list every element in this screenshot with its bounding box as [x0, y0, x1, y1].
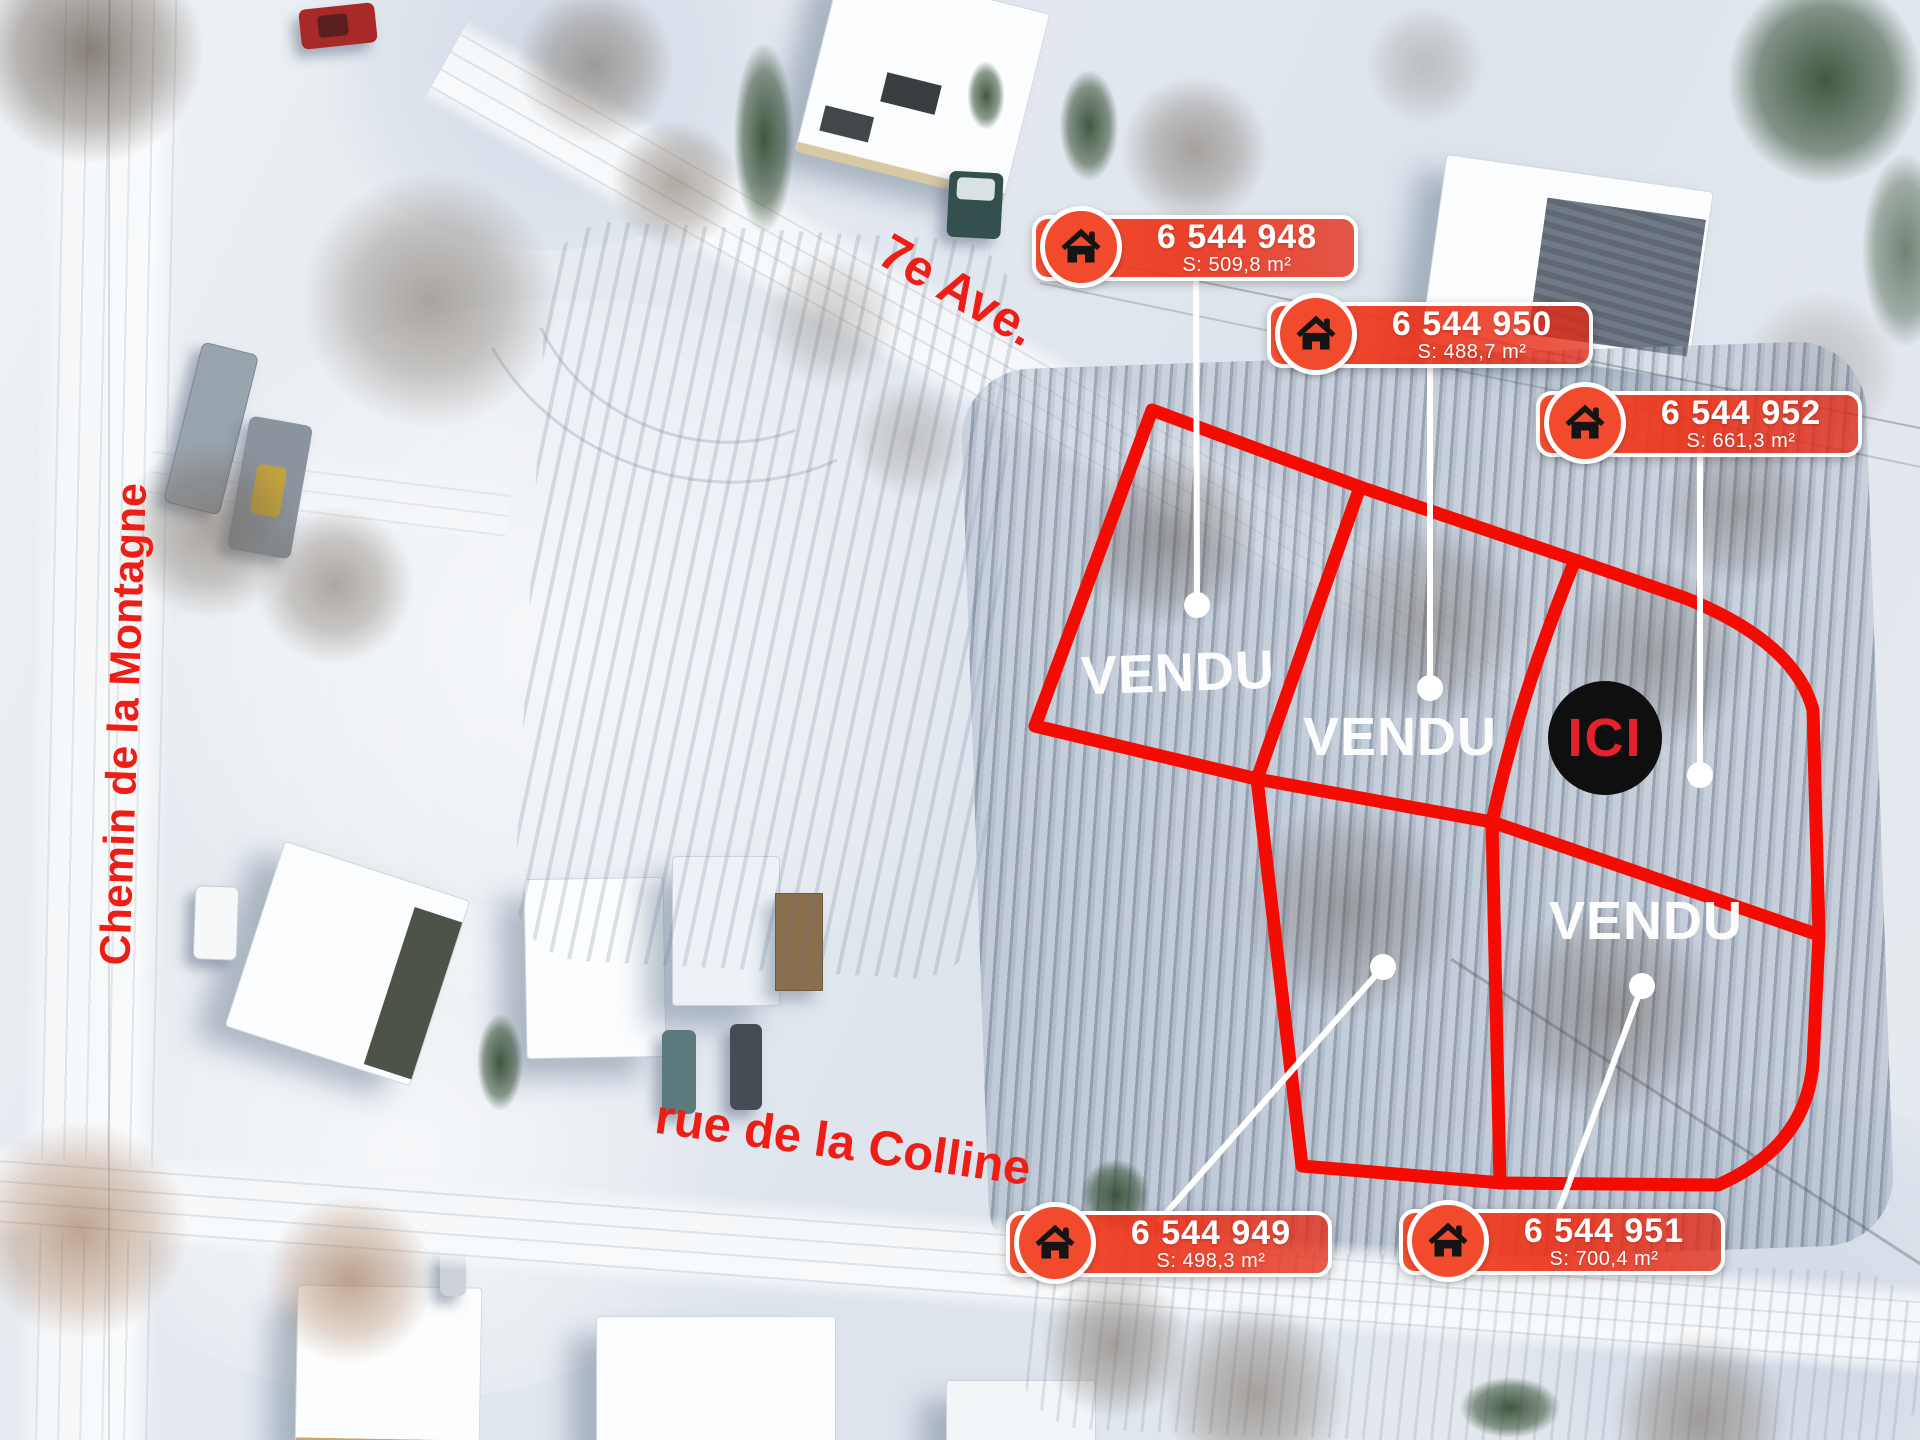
house-icon-circle [1544, 382, 1626, 464]
badge-text: 6 544 951 S: 700,4 m² [1491, 1213, 1717, 1271]
lot-dot[interactable] [1184, 592, 1210, 618]
badge-text: 6 544 949 S: 498,3 m² [1098, 1215, 1324, 1273]
house-icon-circle [1275, 293, 1357, 375]
lot-badge-6544952[interactable]: 6 544 952 S: 661,3 m² [1536, 391, 1862, 457]
badge-text: 6 544 950 S: 488,7 m² [1359, 306, 1585, 364]
lot-surface: S: 488,7 m² [1418, 341, 1527, 363]
sold-label: VENDU [1526, 891, 1766, 951]
lot-number: 6 544 952 [1661, 396, 1821, 430]
house-icon-circle [1014, 1202, 1096, 1284]
lot-badge-6544950[interactable]: 6 544 950 S: 488,7 m² [1267, 302, 1593, 368]
sold-label: VENDU [1057, 639, 1299, 707]
lot-badge-6544951[interactable]: 6 544 951 S: 700,4 m² [1399, 1209, 1725, 1275]
lot-surface: S: 700,4 m² [1550, 1248, 1659, 1270]
house-icon [1562, 400, 1608, 446]
lot-number: 6 544 948 [1157, 220, 1317, 254]
aerial-map: 7e Ave. Chemin de la Montagne rue de la … [0, 0, 1920, 1440]
lot-number: 6 544 951 [1524, 1214, 1684, 1248]
lot-number: 6 544 950 [1392, 307, 1552, 341]
here-marker[interactable]: ICI [1548, 681, 1662, 795]
house-icon-circle [1040, 206, 1122, 288]
lot-badge-6544948[interactable]: 6 544 948 S: 509,8 m² [1032, 215, 1358, 281]
lot-dot[interactable] [1629, 973, 1655, 999]
house-icon [1058, 224, 1104, 270]
house-icon [1425, 1218, 1471, 1264]
house-icon [1293, 311, 1339, 357]
lot-dot[interactable] [1370, 954, 1396, 980]
lot-badge-6544949[interactable]: 6 544 949 S: 498,3 m² [1006, 1211, 1332, 1277]
sold-label: VENDU [1280, 707, 1520, 767]
lot-surface: S: 509,8 m² [1183, 254, 1292, 276]
house-icon [1032, 1220, 1078, 1266]
lot-surface: S: 498,3 m² [1157, 1250, 1266, 1272]
lot-surface: S: 661,3 m² [1687, 430, 1796, 452]
badge-text: 6 544 952 S: 661,3 m² [1628, 395, 1854, 453]
house-icon-circle [1407, 1200, 1489, 1282]
lot-number: 6 544 949 [1131, 1216, 1291, 1250]
badge-text: 6 544 948 S: 509,8 m² [1124, 219, 1350, 277]
lot-dot[interactable] [1417, 675, 1443, 701]
lot-dot[interactable] [1687, 762, 1713, 788]
